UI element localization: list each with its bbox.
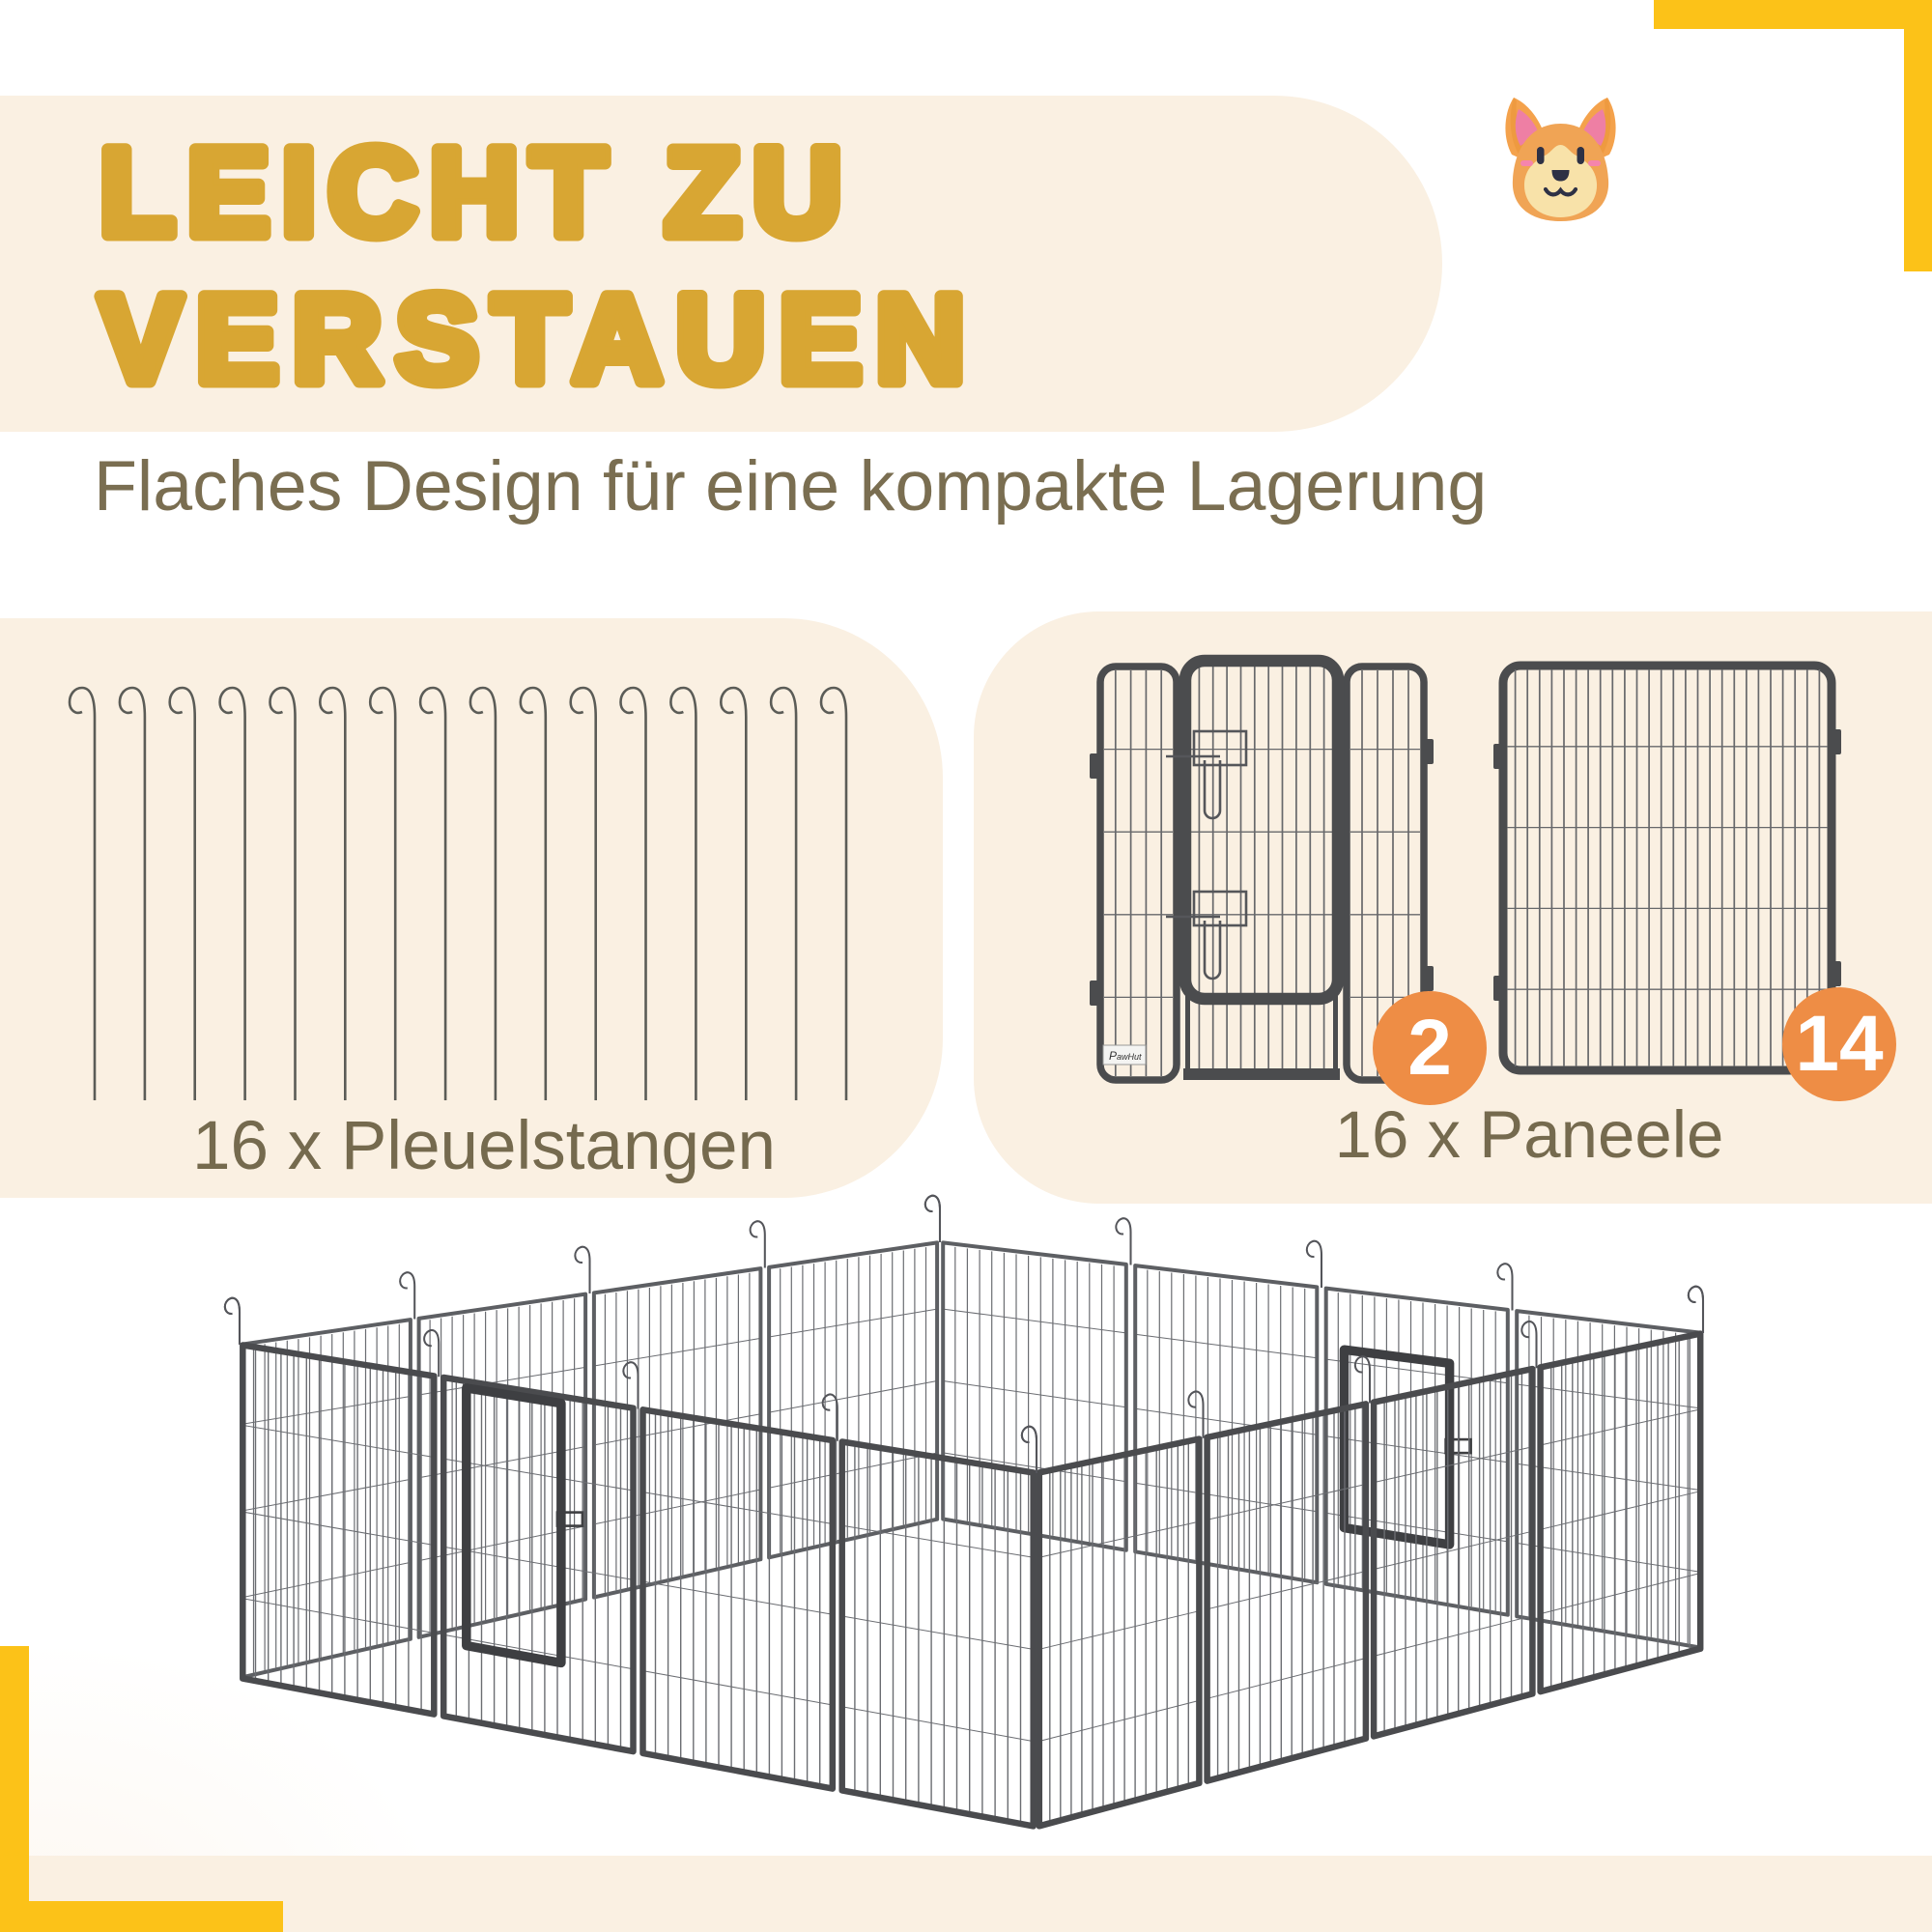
svg-text:PawHut: PawHut (1109, 1049, 1142, 1063)
